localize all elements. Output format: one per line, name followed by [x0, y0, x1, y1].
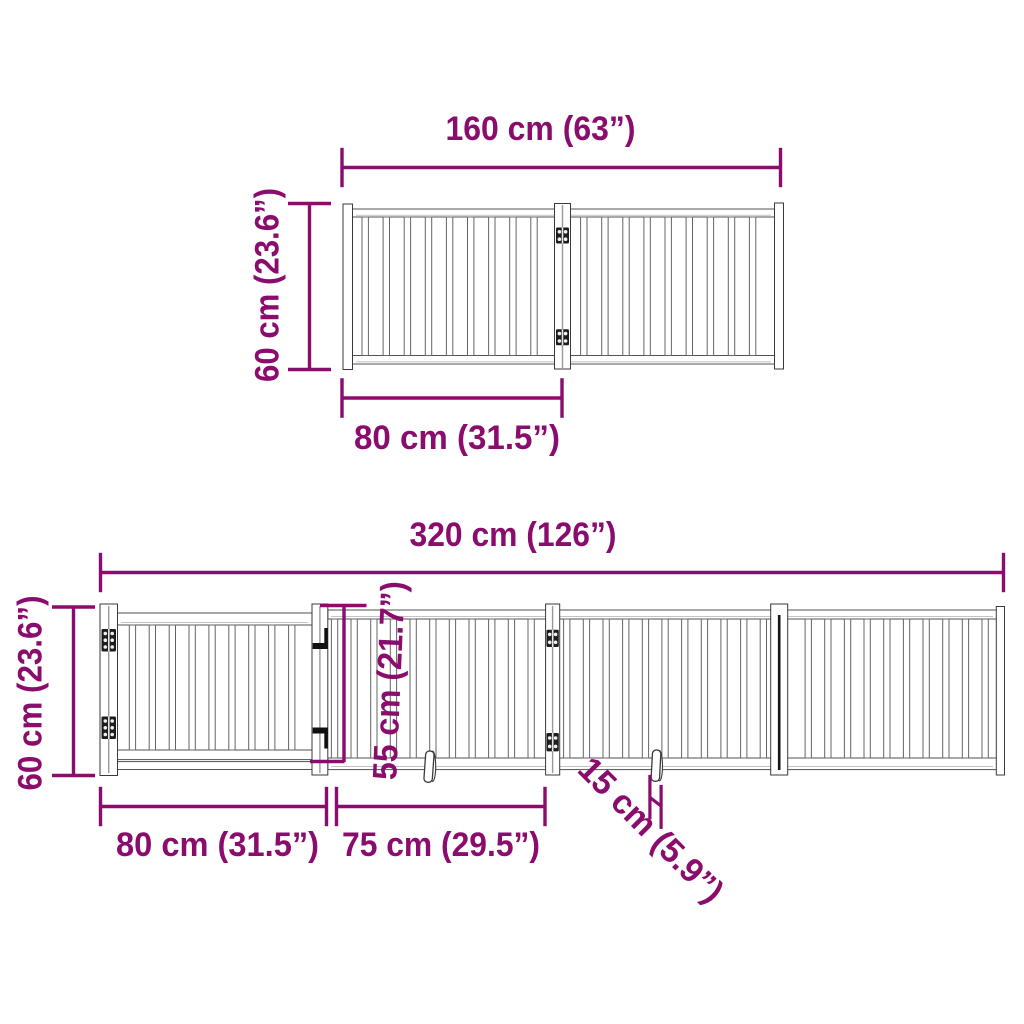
svg-text:75 cm (29.5”): 75 cm (29.5”)	[342, 826, 540, 864]
svg-text:80 cm (31.5”): 80 cm (31.5”)	[354, 419, 560, 457]
svg-text:320 cm (126”): 320 cm (126”)	[410, 516, 617, 554]
svg-text:60 cm (23.6”): 60 cm (23.6”)	[249, 188, 287, 382]
svg-text:60 cm (23.6”): 60 cm (23.6”)	[12, 596, 50, 791]
svg-text:80 cm (31.5”): 80 cm (31.5”)	[116, 826, 319, 864]
svg-text:160 cm (63”): 160 cm (63”)	[446, 110, 636, 148]
